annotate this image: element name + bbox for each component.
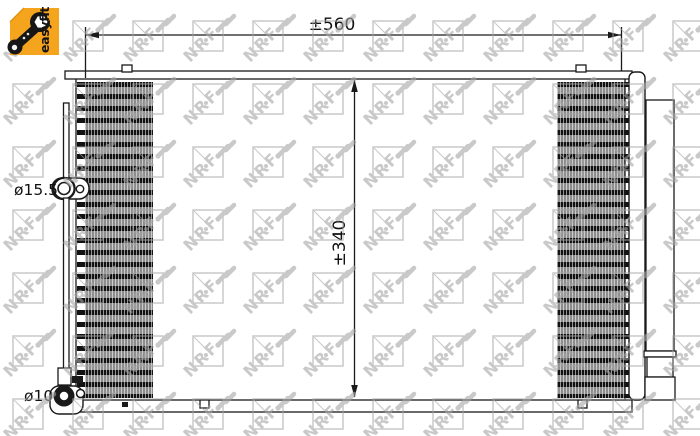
arrow-left-icon [86,32,99,38]
dimension-width: ±560 [86,15,622,78]
mounting-bracket-bottom [122,402,128,407]
receiver-drier [644,100,676,400]
bottom-header-bar [75,400,632,412]
inlet-pipe [64,103,70,179]
condenser-drawing: ±560 ±340 ø15.5 ø10 [0,0,700,436]
right-header-tank [629,72,645,400]
arrow-right-icon [608,32,621,38]
outlet-port-label: ø10 [24,387,53,405]
arrow-up-icon [351,80,358,93]
width-dimension-label: ±560 [309,15,356,35]
mounting-tab-bottom-right [578,400,587,408]
arrow-down-icon [351,385,358,398]
mounting-tab-top-right [576,65,586,72]
mounting-tab-bottom-left [200,400,209,408]
top-header-bar [65,71,632,79]
easyfit-label: easyfit [37,7,52,53]
mounting-tab-top-left [122,65,132,72]
condenser-technical-drawing: ±560 ±340 ø15.5 ø10 NRF [0,0,700,436]
inlet-port-label: ø15.5 [14,181,58,199]
outlet-fitting [50,386,85,415]
easyfit-badge: easyfit [2,2,66,62]
outlet-pipe [58,198,83,385]
dimension-height: ±340 [330,80,358,398]
height-dimension-label: ±340 [330,220,350,267]
